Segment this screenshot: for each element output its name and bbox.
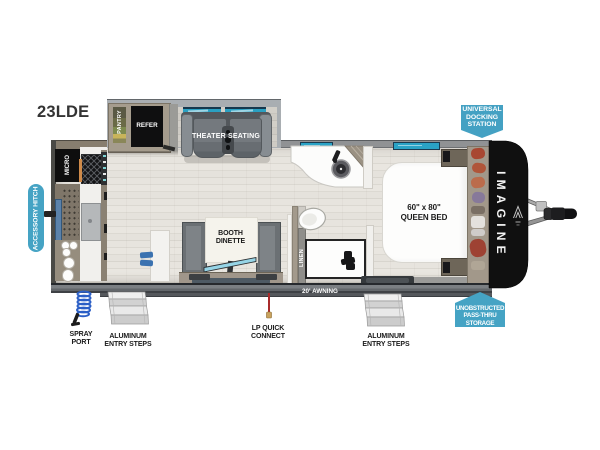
svg-text:IMAGINE: IMAGINE <box>494 171 508 259</box>
